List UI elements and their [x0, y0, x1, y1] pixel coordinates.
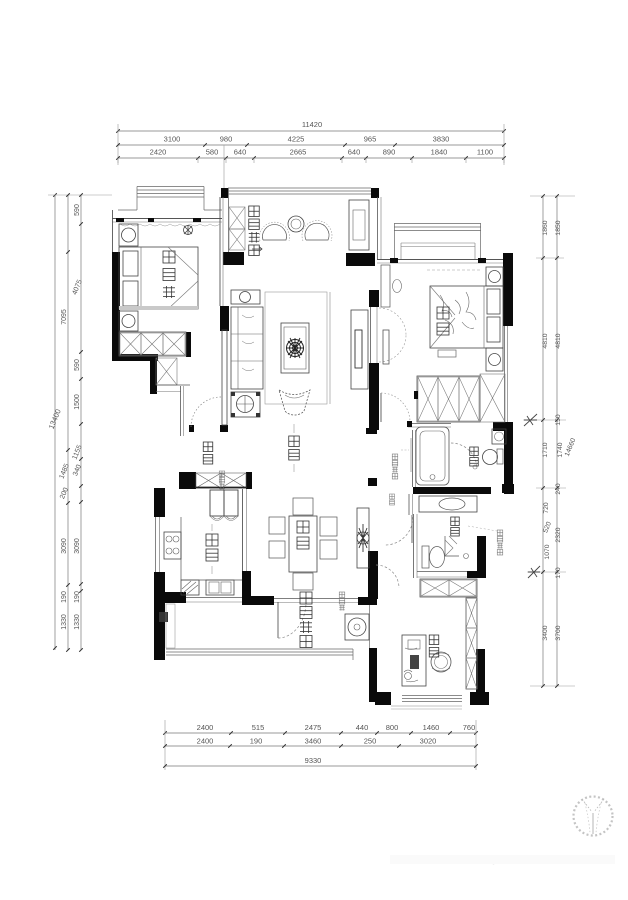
svg-text:800: 800 [386, 723, 399, 732]
svg-text:150: 150 [555, 414, 562, 426]
svg-text:3090: 3090 [74, 538, 81, 554]
svg-text:4810: 4810 [542, 333, 549, 348]
svg-text:190: 190 [250, 737, 263, 746]
svg-text:515: 515 [252, 723, 265, 732]
svg-text:2400: 2400 [197, 737, 214, 746]
svg-text:2665: 2665 [290, 148, 307, 157]
svg-text:2400: 2400 [197, 723, 214, 732]
svg-text:3400: 3400 [542, 625, 549, 640]
svg-text:640: 640 [234, 148, 247, 157]
svg-text:190: 190 [74, 591, 81, 603]
svg-text:1850: 1850 [555, 220, 562, 235]
svg-text:1330: 1330 [61, 614, 68, 630]
svg-text:440: 440 [356, 723, 369, 732]
svg-text:190: 190 [61, 591, 68, 603]
svg-text:3090: 3090 [61, 538, 68, 554]
svg-text:1500: 1500 [74, 394, 81, 410]
svg-text:2320: 2320 [555, 527, 562, 542]
svg-text:965: 965 [364, 135, 377, 144]
svg-text:590: 590 [74, 359, 81, 371]
svg-text:3100: 3100 [164, 135, 181, 144]
svg-text:9330: 9330 [305, 756, 322, 765]
svg-text:4810: 4810 [555, 333, 562, 348]
svg-text:590: 590 [74, 204, 81, 216]
svg-text:760: 760 [463, 723, 476, 732]
svg-text:1330: 1330 [74, 614, 81, 630]
svg-text:240: 240 [555, 483, 562, 495]
svg-text:7095: 7095 [61, 309, 68, 325]
svg-text:1100: 1100 [477, 148, 493, 157]
svg-text:720: 720 [543, 502, 550, 514]
svg-text:1070: 1070 [544, 544, 551, 559]
svg-text:3020: 3020 [420, 737, 437, 746]
svg-text:4225: 4225 [288, 135, 305, 144]
svg-text:170: 170 [555, 567, 562, 579]
svg-text:1840: 1840 [431, 148, 448, 157]
svg-text:1460: 1460 [423, 723, 440, 732]
svg-text:890: 890 [383, 148, 396, 157]
svg-text:11420: 11420 [302, 120, 322, 129]
svg-text:3830: 3830 [433, 135, 450, 144]
svg-text:3460: 3460 [305, 737, 322, 746]
svg-text:580: 580 [206, 148, 219, 157]
svg-text:1860: 1860 [542, 220, 549, 235]
svg-text:980: 980 [220, 135, 233, 144]
svg-text:1710: 1710 [542, 442, 549, 457]
svg-text:2420: 2420 [150, 148, 167, 157]
svg-text:250: 250 [364, 737, 377, 746]
svg-text:3700: 3700 [555, 625, 562, 640]
svg-text:640: 640 [348, 148, 361, 157]
svg-text:2475: 2475 [305, 723, 322, 732]
